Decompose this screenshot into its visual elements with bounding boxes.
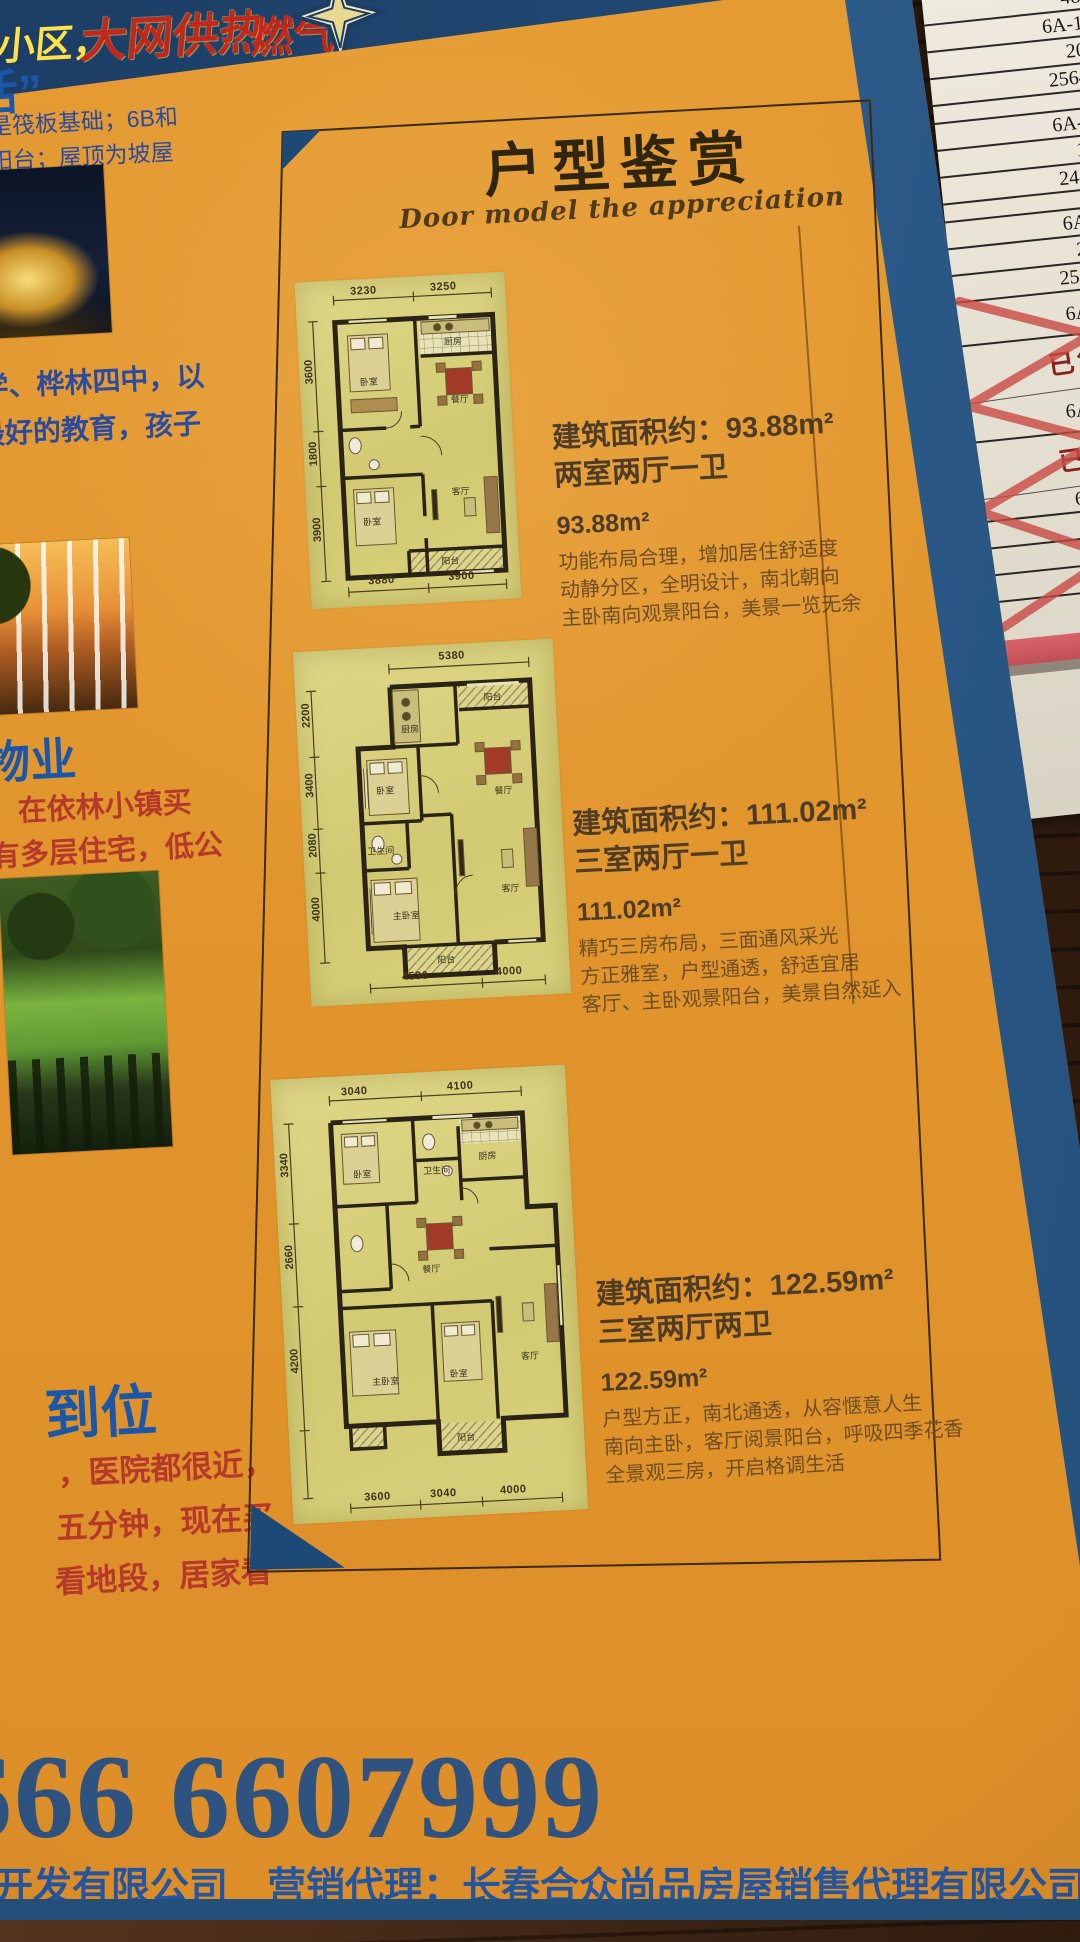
room-label: 餐厅 bbox=[494, 783, 513, 797]
price-row-text: 6A-1-2 bbox=[1065, 395, 1080, 423]
price-row-text: 20 bbox=[1065, 39, 1080, 63]
price-row-text: 48 bbox=[1059, 0, 1080, 9]
price-row-text: 2441 bbox=[1058, 164, 1080, 190]
price-row-text: 19 bbox=[1075, 137, 1080, 161]
dim-label: 3040 bbox=[430, 1487, 457, 1500]
dim-label: 3600 bbox=[364, 1490, 391, 1503]
dim-label: 4000 bbox=[496, 965, 523, 978]
price-row-text: 208 bbox=[1075, 236, 1080, 261]
dim-label: 3250 bbox=[430, 280, 457, 293]
floorplan-3-drawing bbox=[270, 1065, 588, 1525]
price-row-text: 2564 bbox=[1048, 66, 1080, 92]
room-label: 厨房 bbox=[401, 722, 420, 736]
price-row-text: 25644 bbox=[1058, 263, 1080, 290]
room-label: 卫生间 bbox=[423, 1163, 451, 1177]
floorplan-2-text: 建筑面积约：111.02m² 三室两厅一卫 111.02m² 精巧三房布局，三面… bbox=[571, 783, 1012, 1019]
dim-label: 2200 bbox=[299, 693, 313, 738]
room-label: 餐厅 bbox=[451, 392, 470, 406]
room-label: 卧室 bbox=[359, 374, 378, 388]
price-row-text: 6A-1 bbox=[1051, 110, 1080, 136]
phone-number: 666 6607999 bbox=[0, 1728, 604, 1866]
room-label: 阳台 bbox=[457, 1430, 476, 1444]
dim-label: 3230 bbox=[350, 284, 377, 297]
dim-label: 3040 bbox=[341, 1085, 368, 1098]
dim-label: 2660 bbox=[282, 1235, 296, 1280]
price-row-text: 6A-1-1 bbox=[1074, 482, 1080, 510]
room-label: 主卧室 bbox=[392, 908, 420, 922]
price-row-text: 6A-1 bbox=[1041, 12, 1080, 38]
room-label: 阳台 bbox=[441, 553, 460, 567]
floorplan-1-drawing bbox=[295, 272, 522, 610]
dim-label: 1800 bbox=[306, 432, 320, 477]
dim-label: 3900 bbox=[310, 508, 324, 553]
flyer: 小区， 大网供热 燃气 生活” 其他是筏板基础；6B和 落地式阳台；屋顶为坡屋 … bbox=[0, 0, 1080, 1920]
flyer-content: 小区， 大网供热 燃气 生活” 其他是筏板基础；6B和 落地式阳台；屋顶为坡屋 … bbox=[0, 0, 1080, 1940]
floorplan-2-drawing bbox=[293, 639, 571, 1007]
room-label: 客厅 bbox=[521, 1348, 540, 1362]
price-row-text: 6A-1 bbox=[1062, 209, 1080, 235]
room-label: 阳台 bbox=[483, 689, 502, 703]
room-label: 客厅 bbox=[451, 484, 470, 498]
room-label: 厨房 bbox=[478, 1148, 497, 1162]
bottom-blue-strip bbox=[0, 1899, 1080, 1920]
room-label: 卧室 bbox=[450, 1366, 469, 1380]
floorplan-2: 5380 2200 3400 2080 4000 4530 4000 厨房 阳台… bbox=[293, 639, 571, 1007]
dim-label: 4000 bbox=[500, 1483, 527, 1496]
room-label: 餐厅 bbox=[422, 1261, 441, 1275]
dim-label: 3400 bbox=[303, 763, 317, 808]
floorplan-3: 3040 4100 3340 2660 4200 3600 3040 4000 … bbox=[270, 1065, 588, 1525]
corner-triangle-icon bbox=[280, 130, 323, 170]
dim-label: 4200 bbox=[288, 1339, 302, 1384]
dim-label: 4000 bbox=[309, 887, 323, 932]
dim-label: 3880 bbox=[368, 574, 395, 587]
room-label: 客厅 bbox=[501, 881, 520, 895]
room-label: 厨房 bbox=[443, 334, 462, 348]
room-label: 主卧室 bbox=[372, 1374, 400, 1388]
dim-label: 5380 bbox=[438, 649, 465, 662]
dim-label: 3600 bbox=[302, 350, 316, 395]
room-label: 卧室 bbox=[353, 1167, 372, 1181]
room-label: 卧室 bbox=[376, 783, 395, 797]
dim-label: 4530 bbox=[402, 970, 429, 983]
room-label: 卫生间 bbox=[367, 843, 395, 857]
dim-label: 2080 bbox=[306, 823, 320, 868]
dim-label: 3340 bbox=[278, 1143, 292, 1188]
dim-label: 4100 bbox=[447, 1079, 474, 1092]
floorplan-1-text: 建筑面积约：93.88m² 两室两厅一卫 93.88m² 功能布局合理，增加居住… bbox=[551, 397, 992, 633]
floorplan-1: 3230 3250 3600 1800 3900 3880 3900 卧室 厨房… bbox=[295, 272, 522, 610]
room-label: 阳台 bbox=[437, 952, 456, 966]
room-label: 卧室 bbox=[363, 514, 382, 528]
floorplan-3-text: 建筑面积约：122.59m² 三室两厅两卫 122.59m² 户型方正，南北通透… bbox=[595, 1254, 1036, 1490]
dim-label: 3900 bbox=[448, 570, 475, 583]
price-row-text: 6A-1- bbox=[1064, 298, 1080, 325]
